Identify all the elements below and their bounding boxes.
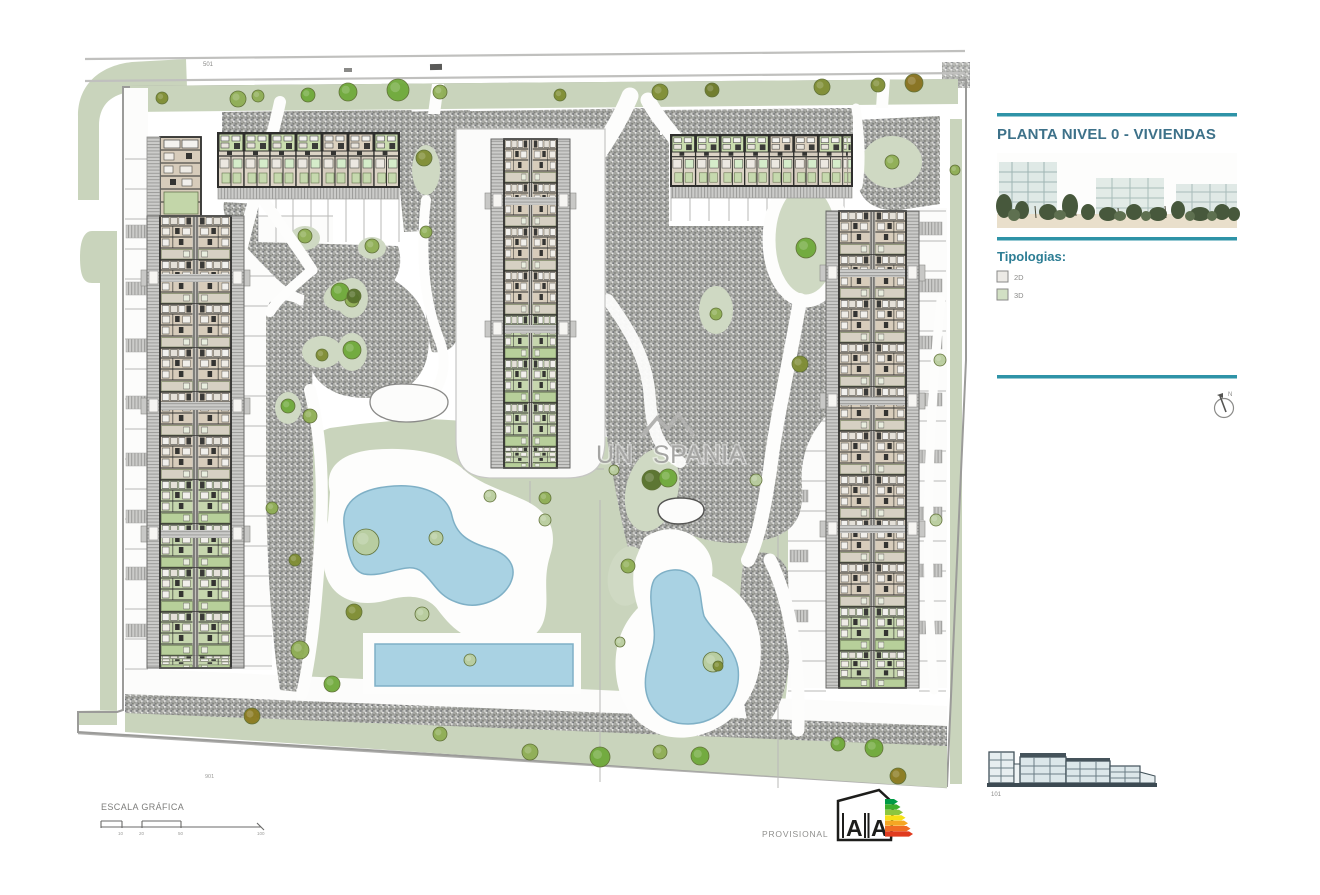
svg-text:PLANTA NIVEL 0 - VIVIENDAS: PLANTA NIVEL 0 - VIVIENDAS bbox=[997, 126, 1216, 143]
svg-text:ESCALA GRÁFICA: ESCALA GRÁFICA bbox=[101, 802, 184, 812]
svg-text:SPANIA: SPANIA bbox=[653, 441, 746, 469]
svg-text:3D: 3D bbox=[1014, 291, 1024, 300]
svg-text:100: 100 bbox=[257, 831, 265, 836]
svg-text:PROVISIONAL: PROVISIONAL bbox=[762, 829, 828, 839]
svg-text:10: 10 bbox=[118, 831, 124, 836]
svg-text:50: 50 bbox=[178, 831, 184, 836]
svg-text:N: N bbox=[1228, 392, 1232, 398]
svg-text:901: 901 bbox=[205, 774, 214, 780]
svg-text:501: 501 bbox=[203, 62, 214, 68]
svg-text:101: 101 bbox=[991, 792, 1002, 798]
svg-text:Tipologias:: Tipologias: bbox=[997, 249, 1066, 264]
svg-text:2D: 2D bbox=[1014, 273, 1024, 282]
svg-text:20: 20 bbox=[139, 831, 145, 836]
svg-text:A: A bbox=[846, 815, 863, 841]
svg-text:UN: UN bbox=[596, 441, 633, 469]
